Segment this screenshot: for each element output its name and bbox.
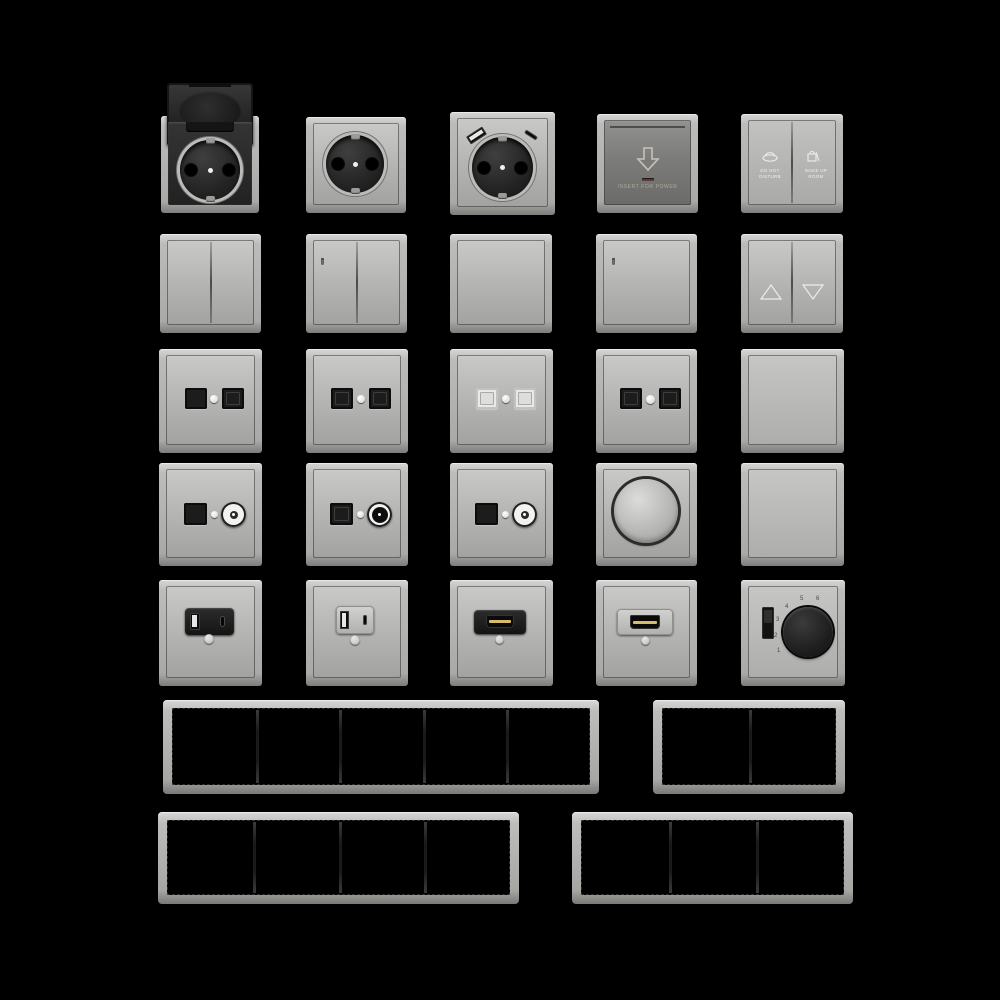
data-port <box>222 388 244 409</box>
usb-c-port <box>524 130 538 141</box>
scale-digit: 4 <box>785 604 788 610</box>
hdmi-port <box>630 615 660 629</box>
product-sheet: INSERT FOR POWER Do not disturb Make up … <box>0 0 1000 1000</box>
scale-digit: 5 <box>800 596 803 602</box>
frame-3-gang <box>572 812 853 904</box>
make-up-room-label: Make up room <box>799 168 833 179</box>
data-coax-outlet <box>306 463 408 566</box>
data-port <box>184 503 207 525</box>
data-port-white <box>514 388 536 409</box>
dual-data-outlet-white <box>450 349 553 453</box>
data-port <box>659 388 681 409</box>
blank-rocker-plate <box>741 349 844 453</box>
usb-module <box>185 608 234 635</box>
frame-4-gang <box>158 812 519 904</box>
hdmi-module-light <box>617 609 673 635</box>
on-off-slider <box>762 607 774 639</box>
usb-a-port <box>190 613 200 630</box>
dimmer-knob <box>614 479 678 543</box>
schuko-socket-well <box>326 135 384 193</box>
coax-connector <box>221 502 246 527</box>
scale-digit: 3 <box>776 617 779 623</box>
lid-hinge <box>186 122 234 132</box>
data-port <box>369 388 391 409</box>
double-rocker-switch-led <box>306 234 407 333</box>
lid-top-bar <box>189 83 231 87</box>
schuko-socket-well <box>472 137 533 198</box>
data-port <box>620 388 642 409</box>
coax-connector <box>367 502 392 527</box>
single-rocker-switch-led <box>596 234 697 333</box>
screw-dot <box>646 395 655 404</box>
schuko-socket-with-lid <box>161 116 259 213</box>
triangle-up-outline-icon <box>759 282 783 302</box>
card-switch-label: INSERT FOR POWER <box>604 184 691 190</box>
usb-module-light <box>336 606 374 634</box>
screw-dot <box>211 511 218 518</box>
led-indicator <box>612 258 615 265</box>
card-slot-line <box>610 126 685 128</box>
data-coax-outlet <box>450 463 553 566</box>
hdmi-port <box>486 615 514 628</box>
data-port <box>475 503 498 525</box>
frame-2-gang <box>653 700 845 794</box>
screw-dot <box>502 395 510 403</box>
dual-data-outlet <box>596 349 697 453</box>
screw <box>350 635 360 645</box>
screw-dot <box>357 395 365 403</box>
screw-dot <box>210 395 218 403</box>
card-led-indicator <box>642 178 654 181</box>
do-not-disturb-icon <box>761 150 779 164</box>
rotary-dimmer <box>596 463 697 566</box>
triangle-down-outline-icon <box>801 282 825 302</box>
data-coax-outlet <box>159 463 262 566</box>
usb-c-port <box>363 615 367 625</box>
usb-c-port <box>220 616 225 627</box>
data-port-white <box>476 388 498 409</box>
dual-data-outlet <box>159 349 262 453</box>
coax-connector <box>512 502 537 527</box>
arrow-down-outline-icon <box>633 146 663 172</box>
usb-charger-outlet-light <box>306 580 408 686</box>
single-rocker-switch <box>450 234 552 333</box>
dnd-mur-switch: Do not disturb Make up room <box>741 114 843 213</box>
dnd-label: Do not disturb <box>753 168 787 179</box>
scale-digit: 1 <box>777 648 780 654</box>
scale-digit: 6 <box>816 596 819 602</box>
usb-a-port <box>340 611 349 629</box>
scale-digit: 2 <box>774 633 777 639</box>
data-port <box>330 503 353 525</box>
hdmi-module <box>474 610 526 634</box>
screw <box>495 635 504 644</box>
thermostat-knob <box>783 607 833 657</box>
data-port <box>185 388 207 409</box>
usb-charger-outlet-black <box>159 580 262 686</box>
led-indicator <box>321 258 324 265</box>
screw <box>204 634 214 644</box>
screw-dot <box>502 511 509 518</box>
thermostat: 1 2 3 4 5 6 <box>741 580 845 686</box>
schuko-socket-usb <box>450 112 555 215</box>
data-port <box>331 388 353 409</box>
blank-cover-plate <box>741 463 844 566</box>
schuko-socket-well <box>180 140 240 200</box>
make-up-room-icon <box>805 148 821 164</box>
double-rocker-switch <box>160 234 261 333</box>
screw-dot <box>357 511 364 518</box>
frame-5-gang <box>163 700 599 794</box>
shutter-rocker-switch <box>741 234 843 333</box>
hdmi-outlet-black <box>450 580 553 686</box>
schuko-socket <box>306 117 406 213</box>
dual-data-outlet <box>306 349 408 453</box>
key-card-switch: INSERT FOR POWER <box>597 114 698 213</box>
screw <box>641 636 650 645</box>
hdmi-outlet-light <box>596 580 697 686</box>
